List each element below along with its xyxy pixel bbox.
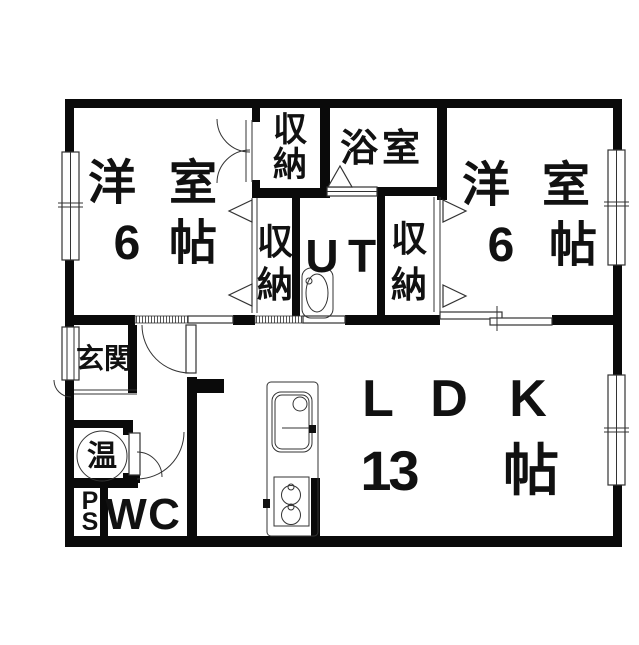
window-ldk [604, 375, 629, 485]
wall-bedleft-closet-top [252, 108, 260, 122]
wall-kitchen-stub [311, 478, 320, 536]
sliding-door-bedroom-right [440, 306, 552, 331]
closet-mid-right-doors [434, 197, 466, 312]
room-label-wc: W [105, 490, 147, 539]
wall-hall-stub [197, 379, 224, 393]
closet-top-doors [217, 119, 252, 183]
sliding-door-utility [255, 316, 345, 323]
floor-plan-drawing: 洋 室 6 帖 洋 室 6 帖 L D K 1 3 帖 浴 室 収 納 収 納 … [0, 0, 639, 640]
bathroom-door [327, 166, 377, 196]
wall-bath-right [437, 108, 447, 200]
wall-mid-row-b [233, 315, 255, 325]
wall-mid-row-c [345, 315, 440, 325]
room-size-bedroom-right: 帖 [549, 219, 597, 272]
room-label-utility: T [348, 230, 376, 282]
room-size-ldk: 1 [360, 439, 391, 502]
room-label-closet-top: 納 [273, 146, 307, 184]
room-label-ldk: L [362, 370, 396, 428]
room-size-ldk: 3 [388, 439, 419, 502]
room-label-water-heater: 温 [87, 440, 117, 473]
wall-heater-top [65, 420, 133, 428]
stove-burner [282, 506, 301, 525]
floor-plan: 洋 室 6 帖 洋 室 6 帖 L D K 1 3 帖 浴 室 収 納 収 納 … [0, 0, 639, 640]
stove-burner [282, 486, 301, 505]
wall-outer-top [65, 99, 622, 108]
kitchen-counter [263, 382, 318, 536]
room-size-bedroom-left: 帖 [169, 217, 217, 270]
room-label-entrance: 玄関 [76, 342, 132, 374]
room-size-bedroom-right: 6 [488, 219, 515, 272]
wall-bath-left [320, 108, 330, 196]
room-label-bathroom: 浴 [340, 128, 379, 170]
wall-closetL-ut [292, 196, 300, 320]
window-bedroom-right [604, 150, 629, 265]
room-label-bedroom-left: 室 [169, 157, 217, 210]
window-bedroom-left [58, 152, 83, 260]
room-label-ldk: K [509, 370, 549, 428]
hall-door [142, 325, 196, 373]
wall-closet-top-bottom [252, 188, 330, 198]
heater-wc-doors [129, 432, 184, 479]
room-label-wc: C [148, 490, 180, 539]
room-size-ldk: 帖 [503, 439, 559, 502]
wall-ut-closetR [377, 196, 385, 320]
wall-bath-bottom [377, 187, 447, 196]
room-size-bedroom-left: 6 [114, 217, 141, 270]
room-label-closet-mid-right: 収 [391, 218, 427, 259]
room-label-utility: U [305, 230, 338, 282]
closet-mid-left-doors [229, 198, 257, 313]
room-label-ldk: D [430, 370, 470, 428]
kitchen-faucet [293, 397, 307, 411]
room-label-closet-mid-left: 収 [257, 221, 293, 262]
room-label-bedroom-left: 洋 [88, 157, 136, 210]
room-label-closet-mid-right: 納 [391, 264, 427, 305]
room-label-closet-mid-left: 納 [257, 264, 293, 305]
sliding-door-bedroom-left [135, 316, 233, 323]
room-label-bedroom-right: 洋 [462, 159, 510, 212]
room-label-pipe-space: S [82, 508, 99, 536]
wall-mid-row-d [552, 315, 613, 325]
wall-mid-row-a [65, 315, 135, 325]
room-label-bedroom-right: 室 [542, 159, 590, 212]
room-label-closet-top: 収 [273, 111, 307, 149]
wall-hall-ldk [187, 377, 197, 536]
room-label-bathroom: 室 [382, 127, 420, 170]
